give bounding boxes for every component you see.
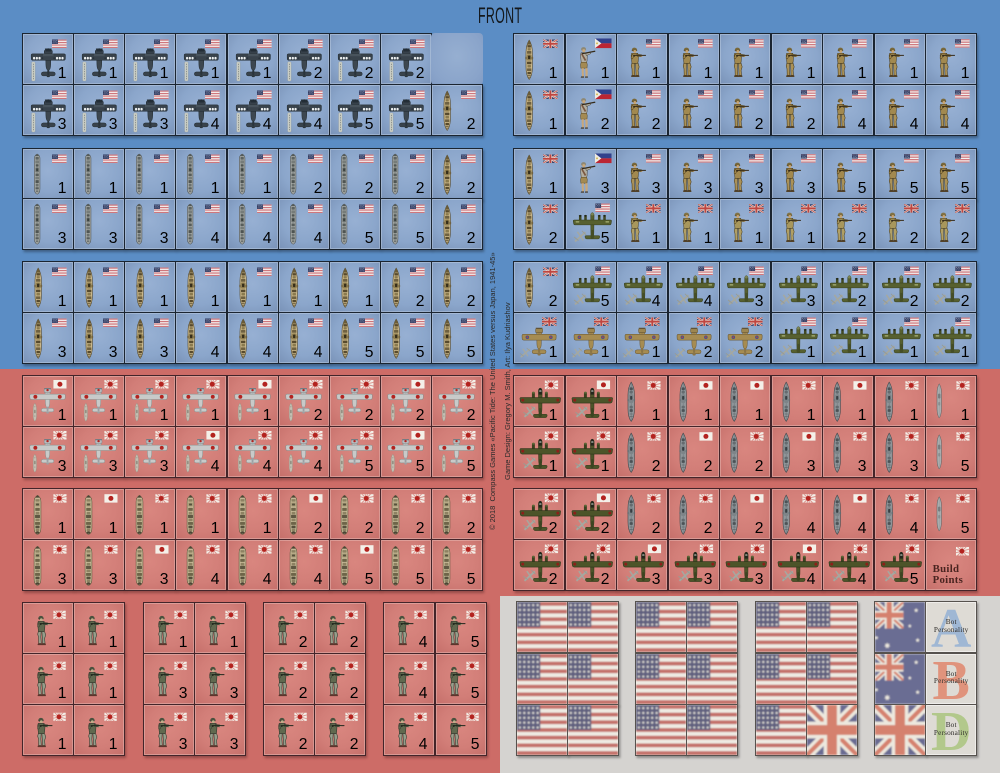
svg-text:1: 1: [211, 293, 220, 310]
svg-text:5: 5: [416, 571, 425, 588]
svg-text:1: 1: [262, 407, 271, 424]
svg-text:3: 3: [109, 344, 118, 361]
svg-text:3: 3: [109, 116, 118, 133]
svg-text:1: 1: [109, 634, 118, 651]
svg-text:5: 5: [961, 458, 970, 475]
svg-text:1: 1: [160, 407, 169, 424]
svg-text:3: 3: [109, 230, 118, 247]
svg-text:4: 4: [262, 571, 271, 588]
svg-text:5: 5: [858, 180, 867, 197]
svg-text:1: 1: [652, 65, 661, 82]
svg-text:1: 1: [806, 407, 815, 424]
svg-text:4: 4: [262, 116, 271, 133]
svg-text:1: 1: [58, 65, 67, 82]
svg-text:1: 1: [549, 458, 558, 475]
svg-text:2: 2: [909, 293, 918, 310]
svg-text:1: 1: [858, 344, 867, 361]
svg-text:1: 1: [652, 344, 661, 361]
svg-text:1: 1: [601, 65, 610, 82]
svg-text:1: 1: [109, 520, 118, 537]
svg-text:3: 3: [755, 293, 764, 310]
svg-text:2: 2: [416, 407, 425, 424]
svg-text:5: 5: [467, 571, 476, 588]
svg-text:4: 4: [313, 458, 322, 475]
svg-text:4: 4: [313, 344, 322, 361]
svg-text:4: 4: [419, 634, 428, 651]
svg-text:2: 2: [704, 344, 713, 361]
svg-text:5: 5: [365, 344, 374, 361]
svg-text:4: 4: [806, 571, 815, 588]
svg-text:1: 1: [961, 344, 970, 361]
svg-text:3: 3: [178, 736, 187, 753]
svg-text:1: 1: [58, 407, 67, 424]
svg-text:2: 2: [652, 116, 661, 133]
svg-text:1: 1: [755, 65, 764, 82]
svg-text:1: 1: [160, 180, 169, 197]
svg-text:1: 1: [262, 65, 271, 82]
svg-text:2: 2: [365, 65, 374, 82]
svg-text:2: 2: [467, 230, 476, 247]
svg-text:5: 5: [467, 344, 476, 361]
svg-text:3: 3: [178, 685, 187, 702]
svg-text:1: 1: [211, 65, 220, 82]
svg-text:2: 2: [601, 116, 610, 133]
svg-text:1: 1: [262, 180, 271, 197]
svg-text:2: 2: [350, 634, 359, 651]
svg-text:2: 2: [549, 571, 558, 588]
svg-text:2: 2: [909, 230, 918, 247]
svg-text:2: 2: [806, 116, 815, 133]
svg-text:2: 2: [601, 520, 610, 537]
svg-text:1: 1: [961, 407, 970, 424]
svg-text:1: 1: [549, 180, 558, 197]
svg-text:2: 2: [313, 520, 322, 537]
svg-text:2: 2: [416, 65, 425, 82]
svg-text:3: 3: [58, 230, 67, 247]
svg-text:2: 2: [313, 65, 322, 82]
svg-text:4: 4: [858, 116, 867, 133]
svg-text:1: 1: [109, 293, 118, 310]
svg-text:3: 3: [58, 571, 67, 588]
svg-text:1: 1: [109, 685, 118, 702]
svg-text:2: 2: [299, 685, 308, 702]
svg-text:3: 3: [160, 344, 169, 361]
svg-text:3: 3: [109, 458, 118, 475]
svg-text:5: 5: [470, 736, 479, 753]
svg-text:1: 1: [704, 65, 713, 82]
svg-text:4: 4: [858, 571, 867, 588]
svg-text:2: 2: [467, 180, 476, 197]
svg-text:2: 2: [755, 116, 764, 133]
svg-text:1: 1: [262, 293, 271, 310]
svg-text:2: 2: [961, 230, 970, 247]
svg-text:2: 2: [652, 458, 661, 475]
svg-text:1: 1: [365, 293, 374, 310]
svg-text:4: 4: [211, 344, 220, 361]
svg-text:2: 2: [416, 293, 425, 310]
svg-text:1: 1: [58, 736, 67, 753]
svg-text:3: 3: [909, 458, 918, 475]
svg-text:5: 5: [961, 520, 970, 537]
svg-text:2: 2: [467, 520, 476, 537]
svg-text:3: 3: [160, 230, 169, 247]
svg-text:5: 5: [470, 634, 479, 651]
svg-text:5: 5: [416, 230, 425, 247]
svg-text:3: 3: [160, 571, 169, 588]
svg-text:1: 1: [211, 180, 220, 197]
svg-text:3: 3: [58, 116, 67, 133]
svg-text:4: 4: [909, 116, 918, 133]
svg-text:3: 3: [230, 736, 239, 753]
svg-text:5: 5: [365, 571, 374, 588]
svg-text:1: 1: [755, 230, 764, 247]
svg-text:2: 2: [365, 520, 374, 537]
svg-text:1: 1: [109, 736, 118, 753]
svg-text:1: 1: [704, 230, 713, 247]
svg-text:2: 2: [467, 293, 476, 310]
svg-text:2: 2: [350, 736, 359, 753]
svg-text:1: 1: [549, 344, 558, 361]
svg-text:4: 4: [313, 116, 322, 133]
svg-text:2: 2: [704, 520, 713, 537]
svg-text:4: 4: [419, 685, 428, 702]
svg-text:2: 2: [467, 116, 476, 133]
svg-text:4: 4: [313, 571, 322, 588]
svg-text:2: 2: [858, 293, 867, 310]
svg-text:3: 3: [755, 180, 764, 197]
svg-text:1: 1: [806, 230, 815, 247]
svg-text:1: 1: [58, 180, 67, 197]
svg-text:2: 2: [755, 458, 764, 475]
svg-text:3: 3: [806, 180, 815, 197]
svg-text:2: 2: [704, 458, 713, 475]
svg-text:5: 5: [416, 116, 425, 133]
svg-text:1: 1: [58, 293, 67, 310]
svg-text:5: 5: [365, 116, 374, 133]
svg-text:1: 1: [909, 65, 918, 82]
svg-text:2: 2: [313, 180, 322, 197]
svg-text:5: 5: [416, 344, 425, 361]
svg-text:4: 4: [211, 116, 220, 133]
svg-text:3: 3: [704, 180, 713, 197]
svg-text:2: 2: [858, 230, 867, 247]
svg-text:2: 2: [467, 407, 476, 424]
svg-text:1: 1: [160, 65, 169, 82]
svg-text:2: 2: [961, 293, 970, 310]
svg-text:3: 3: [58, 344, 67, 361]
svg-text:1: 1: [601, 344, 610, 361]
svg-text:1: 1: [601, 407, 610, 424]
svg-text:3: 3: [755, 571, 764, 588]
svg-text:3: 3: [160, 458, 169, 475]
svg-text:1: 1: [262, 520, 271, 537]
svg-text:2: 2: [365, 407, 374, 424]
svg-text:3: 3: [806, 293, 815, 310]
svg-text:5: 5: [909, 180, 918, 197]
svg-text:2: 2: [299, 634, 308, 651]
svg-text:3: 3: [806, 458, 815, 475]
svg-text:1: 1: [909, 344, 918, 361]
svg-text:4: 4: [806, 520, 815, 537]
svg-text:3: 3: [858, 458, 867, 475]
svg-text:1: 1: [109, 180, 118, 197]
svg-text:1: 1: [549, 407, 558, 424]
svg-text:1: 1: [313, 293, 322, 310]
svg-text:4: 4: [652, 293, 661, 310]
svg-text:5: 5: [961, 180, 970, 197]
svg-text:1: 1: [652, 230, 661, 247]
svg-text:3: 3: [230, 685, 239, 702]
svg-text:5: 5: [467, 458, 476, 475]
svg-text:1: 1: [58, 685, 67, 702]
svg-text:1: 1: [704, 407, 713, 424]
svg-text:1: 1: [58, 634, 67, 651]
svg-text:1: 1: [909, 407, 918, 424]
svg-text:5: 5: [601, 293, 610, 310]
svg-text:4: 4: [909, 520, 918, 537]
svg-text:2: 2: [350, 685, 359, 702]
svg-text:1: 1: [755, 407, 764, 424]
svg-text:4: 4: [419, 736, 428, 753]
svg-text:1: 1: [178, 634, 187, 651]
svg-text:1: 1: [549, 116, 558, 133]
svg-text:5: 5: [365, 230, 374, 247]
svg-text:4: 4: [858, 520, 867, 537]
svg-text:2: 2: [601, 571, 610, 588]
svg-text:3: 3: [160, 116, 169, 133]
svg-text:1: 1: [109, 407, 118, 424]
svg-text:1: 1: [652, 407, 661, 424]
svg-text:3: 3: [652, 571, 661, 588]
svg-text:3: 3: [704, 571, 713, 588]
svg-text:3: 3: [109, 571, 118, 588]
svg-text:4: 4: [262, 458, 271, 475]
svg-text:2: 2: [755, 344, 764, 361]
svg-text:1: 1: [58, 520, 67, 537]
svg-text:4: 4: [211, 458, 220, 475]
svg-text:2: 2: [549, 293, 558, 310]
svg-text:2: 2: [652, 520, 661, 537]
svg-text:1: 1: [109, 65, 118, 82]
svg-text:1: 1: [230, 634, 239, 651]
svg-text:5: 5: [470, 685, 479, 702]
svg-text:1: 1: [211, 520, 220, 537]
svg-text:1: 1: [601, 458, 610, 475]
svg-text:1: 1: [961, 65, 970, 82]
svg-text:2: 2: [549, 230, 558, 247]
svg-text:5: 5: [416, 458, 425, 475]
svg-text:2: 2: [755, 520, 764, 537]
svg-text:1: 1: [211, 407, 220, 424]
svg-text:1: 1: [858, 407, 867, 424]
svg-text:2: 2: [313, 407, 322, 424]
svg-text:3: 3: [601, 180, 610, 197]
svg-text:2: 2: [416, 520, 425, 537]
svg-text:2: 2: [416, 180, 425, 197]
svg-text:1: 1: [806, 344, 815, 361]
svg-text:3: 3: [58, 458, 67, 475]
svg-text:2: 2: [299, 736, 308, 753]
svg-text:1: 1: [858, 65, 867, 82]
svg-text:4: 4: [961, 116, 970, 133]
svg-text:2: 2: [365, 180, 374, 197]
svg-text:4: 4: [313, 230, 322, 247]
svg-text:1: 1: [549, 65, 558, 82]
svg-text:4: 4: [704, 293, 713, 310]
svg-text:1: 1: [160, 520, 169, 537]
svg-text:2: 2: [549, 520, 558, 537]
svg-text:3: 3: [652, 180, 661, 197]
svg-text:5: 5: [909, 571, 918, 588]
svg-text:4: 4: [262, 344, 271, 361]
svg-text:4: 4: [211, 230, 220, 247]
svg-text:1: 1: [806, 65, 815, 82]
svg-text:5: 5: [365, 458, 374, 475]
svg-text:4: 4: [211, 571, 220, 588]
svg-text:1: 1: [160, 293, 169, 310]
svg-text:4: 4: [262, 230, 271, 247]
svg-text:2: 2: [704, 116, 713, 133]
svg-text:5: 5: [601, 230, 610, 247]
